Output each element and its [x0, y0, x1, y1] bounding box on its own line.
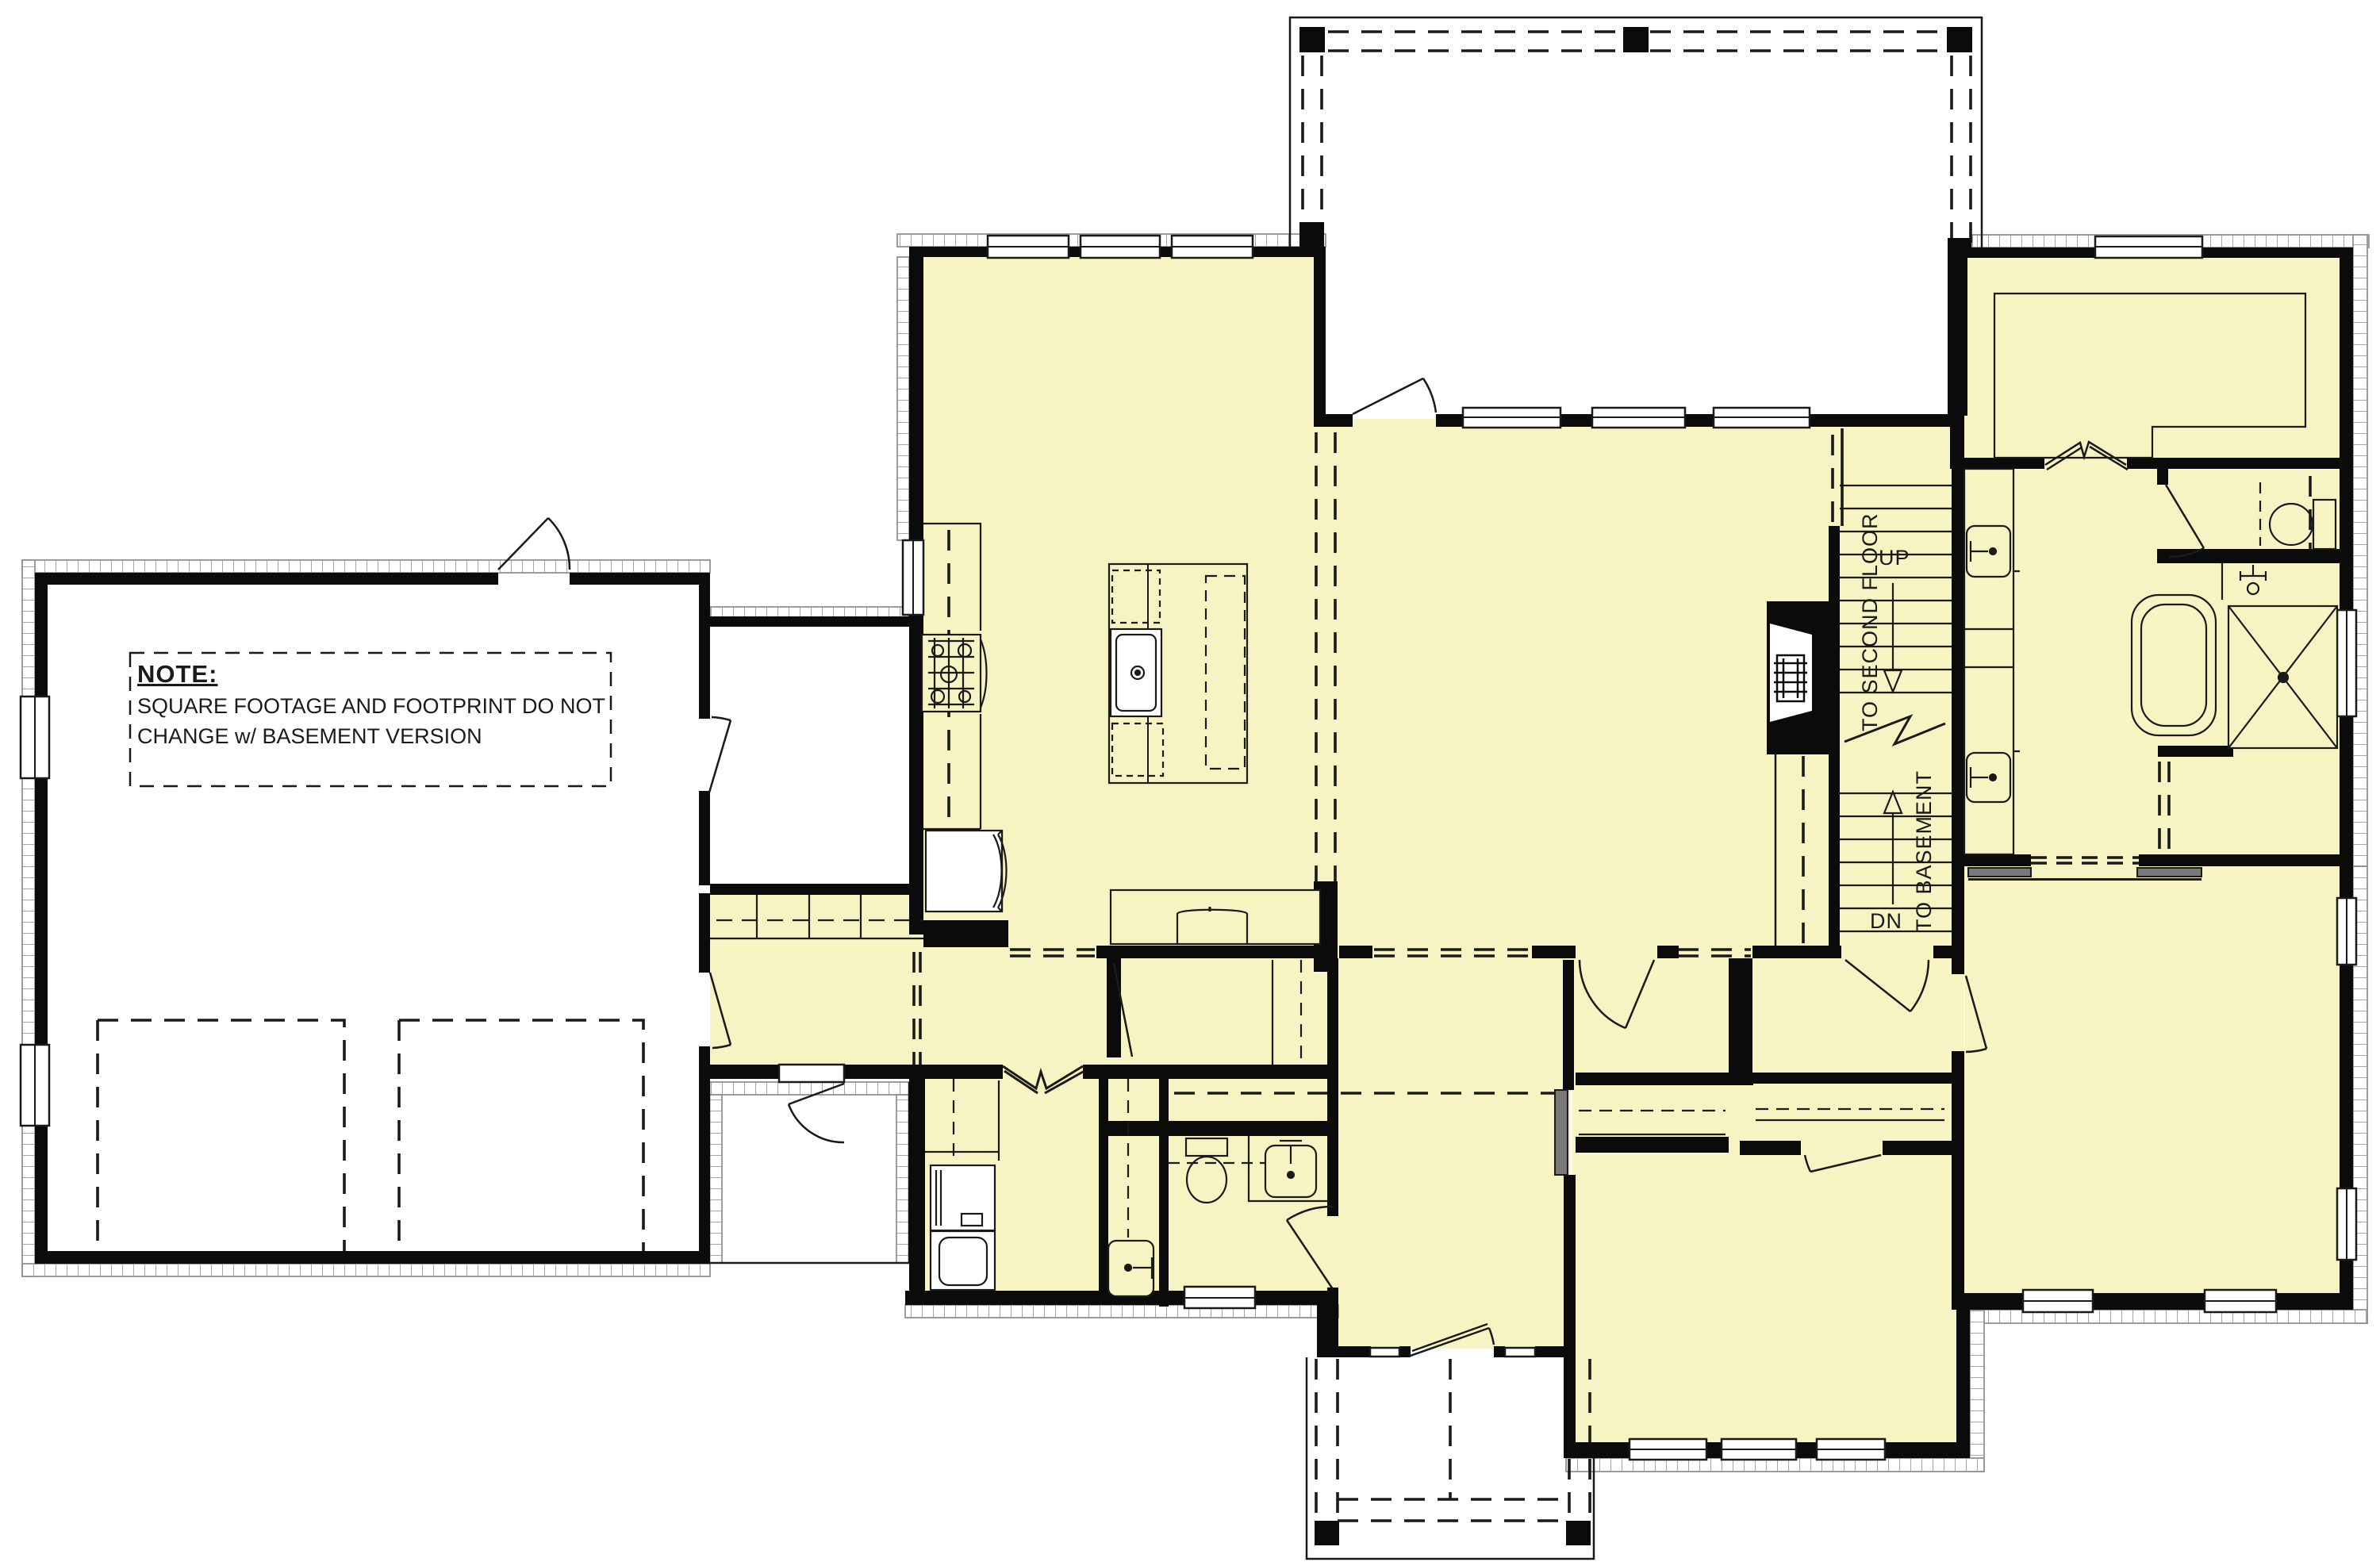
svg-text:SQUARE FOOTAGE AND FOOTPRINT D: SQUARE FOOTAGE AND FOOTPRINT DO NOT — [137, 694, 605, 718]
svg-text:UP: UP — [1879, 546, 1910, 570]
svg-text:CHANGE w/ BASEMENT VERSION: CHANGE w/ BASEMENT VERSION — [137, 724, 482, 748]
svg-text:TO SECOND FLOOR: TO SECOND FLOOR — [1858, 512, 1882, 731]
svg-text:TO BASEMENT: TO BASEMENT — [1912, 770, 1936, 932]
svg-text:NOTE:: NOTE: — [137, 660, 217, 688]
svg-text:DN: DN — [1870, 909, 1902, 933]
